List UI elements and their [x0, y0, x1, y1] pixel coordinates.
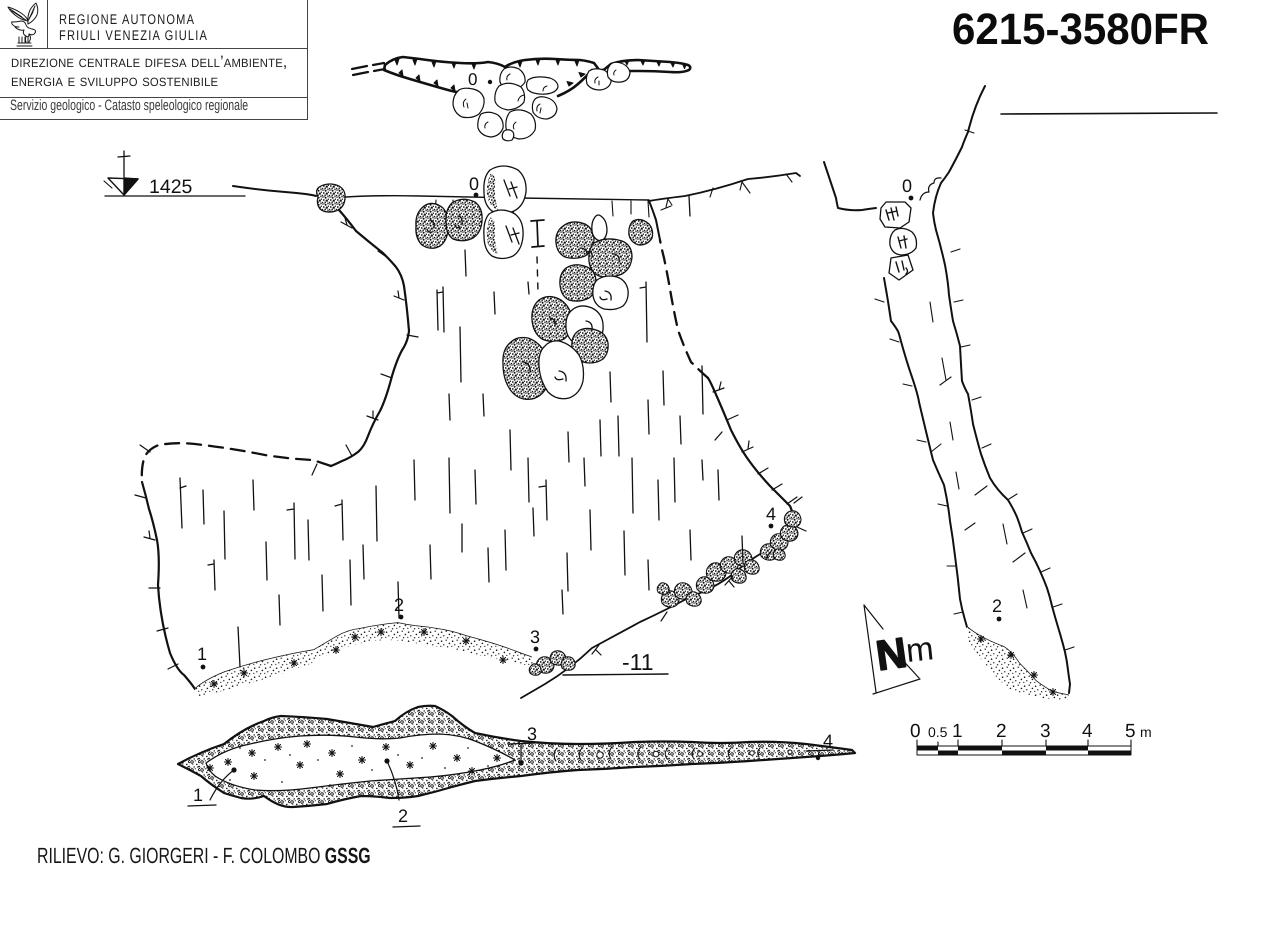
svg-text:4: 4: [766, 504, 776, 524]
svg-text:1425: 1425: [149, 176, 193, 198]
svg-text:0.5: 0.5: [928, 724, 948, 740]
svg-text:1: 1: [952, 721, 963, 742]
svg-text:2: 2: [398, 806, 408, 826]
svg-text:0: 0: [910, 721, 921, 742]
svg-text:1: 1: [193, 785, 203, 805]
svg-text:4: 4: [1082, 721, 1093, 742]
svg-text:0: 0: [469, 174, 479, 194]
svg-text:5: 5: [1125, 721, 1136, 742]
svg-text:3: 3: [527, 724, 537, 744]
svg-text:0: 0: [468, 70, 477, 89]
svg-text:2: 2: [394, 595, 404, 615]
svg-text:m: m: [1140, 724, 1152, 740]
svg-text:2: 2: [996, 721, 1007, 742]
svg-text:2: 2: [992, 596, 1002, 616]
svg-text:-11: -11: [622, 649, 654, 675]
svg-text:0: 0: [902, 176, 912, 196]
svg-text:3: 3: [1040, 721, 1051, 742]
svg-text:1: 1: [197, 644, 207, 664]
svg-text:m: m: [904, 629, 935, 669]
svg-text:4: 4: [823, 731, 833, 751]
svg-text:3: 3: [530, 627, 540, 647]
